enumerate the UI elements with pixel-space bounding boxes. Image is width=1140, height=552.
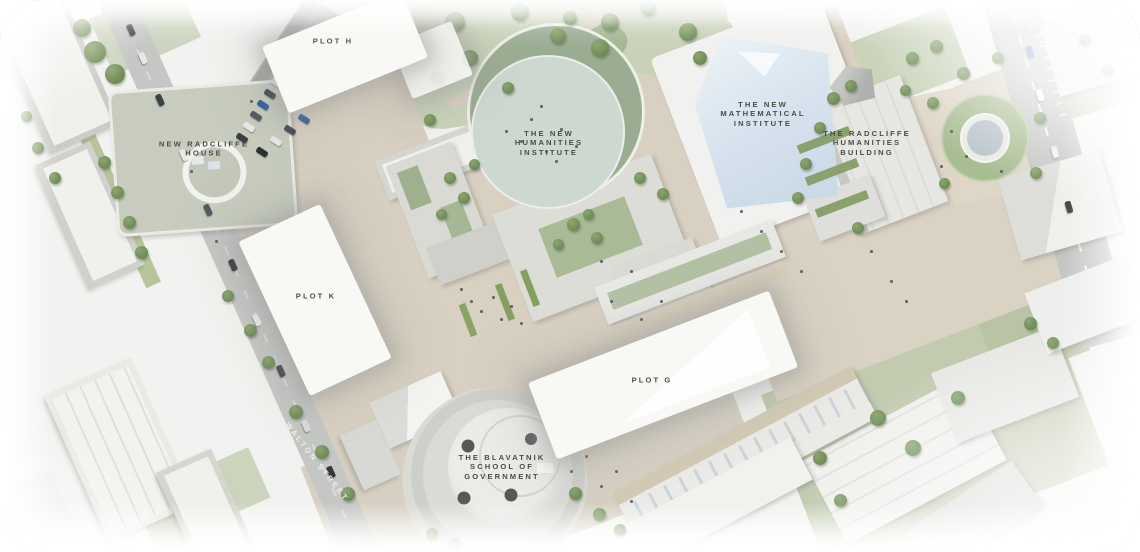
label-blavatnik-school: THE BLAVATNIK SCHOOL OF GOVERNMENT [459,453,546,481]
tree-icon [591,39,609,57]
label-humanities-institute: THE NEW HUMANITIES INSTITUTE [515,129,583,157]
label-new-radcliffe-house: NEW RADCLIFFE HOUSE [159,140,249,159]
person-dot [640,318,643,321]
car-icon [242,121,255,133]
label-line: HUMANITIES [833,138,901,147]
tree-icon [123,216,136,229]
person-dot [492,296,495,299]
car-icon [1035,88,1044,101]
tree-icon [49,172,61,184]
car-icon [1050,145,1059,158]
car-icon [203,203,213,216]
label-line: BUILDING [840,148,894,157]
label-line: PLOT G [632,375,673,384]
tree-icon [591,232,603,244]
tree-icon [583,209,594,220]
tree-icon [792,192,804,204]
car-icon [1064,200,1073,213]
person-dot [505,130,508,133]
tree-icon [436,209,447,220]
tree-icon [1047,337,1059,349]
car-icon [126,23,136,36]
tree-icon [634,172,646,184]
label-line: MATHEMATICAL [720,109,805,118]
person-dot [555,160,558,163]
tree-icon [424,114,436,126]
tree-icon [870,410,886,426]
car-icon [276,364,286,377]
person-dot [190,170,193,173]
tree-icon [449,538,461,550]
tree-icon [939,178,950,189]
tree-icon [458,192,470,204]
tree-icon [444,172,456,184]
person-dot [520,322,523,325]
person-dot [950,130,953,133]
label-mathematical-institute: THE NEW MATHEMATICAL INSTITUTE [720,100,805,128]
person-dot [530,118,533,121]
tree-icon [73,19,91,37]
tree-icon [827,92,840,105]
label-line: PLOT H [313,36,353,45]
label-radcliffe-humanities: THE RADCLIFFE HUMANITIES BUILDING [823,129,911,157]
car-icon [269,135,282,147]
label-line: HUMANITIES [515,138,583,147]
label-line: PLOT K [296,291,336,300]
car-icon [301,419,311,432]
person-dot [585,455,588,458]
car-icon [138,51,148,64]
tree-icon [567,218,580,231]
person-dot [600,260,603,263]
tree-icon [601,13,619,31]
car-icon [155,93,165,106]
person-dot [760,230,763,233]
tree-icon [32,142,44,154]
tree-icon [289,405,303,419]
tree-icon [640,0,656,16]
car-icon [263,88,276,100]
tree-icon [262,356,275,369]
masterplan-map: NEW RADCLIFFE HOUSE PLOT H THE NEW HUMAN… [0,0,1140,552]
tree-icon [135,246,148,259]
car-icon [228,258,238,271]
decoration-layer [0,0,1140,552]
person-dot [660,300,663,303]
person-dot [780,250,783,253]
person-dot [610,300,613,303]
car-icon [297,113,310,125]
tree-icon [813,451,827,465]
tree-icon [550,28,566,44]
tree-icon [657,188,669,200]
tree-icon [957,67,970,80]
tree-icon [1079,34,1091,46]
tree-icon [614,524,626,536]
car-icon [256,99,269,111]
person-dot [540,105,543,108]
person-dot [570,470,573,473]
person-dot [630,500,633,503]
tree-icon [593,508,606,521]
label-line: SCHOOL OF [470,462,534,471]
tree-icon [852,222,864,234]
tree-icon [222,290,234,302]
tree-icon [693,51,707,65]
label-line: GOVERNMENT [464,472,539,481]
label-line: HOUSE [185,149,223,158]
person-dot [965,155,968,158]
tree-icon [1024,317,1037,330]
tree-icon [834,494,847,507]
tree-icon [900,85,911,96]
person-dot [870,250,873,253]
person-dot [630,270,633,273]
tree-icon [906,52,919,65]
label-line: NEW RADCLIFFE [159,140,249,149]
tree-icon [927,97,939,109]
tree-icon [98,156,111,169]
person-dot [600,485,603,488]
label-plot-h: PLOT H [313,36,353,45]
tree-icon [502,82,514,94]
person-dot [615,470,618,473]
person-dot [905,300,908,303]
person-dot [740,210,743,213]
tree-icon [845,80,857,92]
person-dot [1000,170,1003,173]
tree-icon [84,41,106,63]
person-dot [470,300,473,303]
tree-icon [563,11,577,25]
car-icon [249,110,262,122]
label-plot-k: PLOT K [296,291,336,300]
tree-icon [569,487,582,500]
car-icon [283,124,296,136]
person-dot [800,270,803,273]
person-dot [890,280,893,283]
site-plan: NEW RADCLIFFE HOUSE PLOT H THE NEW HUMAN… [0,0,1140,552]
tree-icon [905,440,921,456]
label-line: THE NEW [524,129,574,138]
tree-icon [679,23,697,41]
tree-icon [1034,112,1046,124]
tree-icon [800,158,812,170]
tree-icon [992,52,1004,64]
tree-icon [1102,64,1114,76]
person-dot [510,305,513,308]
label-line: INSTITUTE [520,148,578,157]
tree-icon [105,64,125,84]
tree-icon [21,111,32,122]
label-plot-g: PLOT G [632,375,673,384]
person-dot [460,288,463,291]
tree-icon [244,324,257,337]
person-dot [215,240,218,243]
label-line: THE RADCLIFFE [823,129,911,138]
tree-icon [511,3,529,21]
car-icon [255,146,268,158]
car-icon [1025,45,1034,58]
tree-icon [426,528,438,540]
person-dot [940,165,943,168]
person-dot [500,318,503,321]
tree-icon [553,239,564,250]
tree-icon [469,159,480,170]
tree-icon [111,186,124,199]
tree-icon [951,391,965,405]
person-dot [250,100,253,103]
tree-icon [930,40,943,53]
label-line: INSTITUTE [734,119,792,128]
person-dot [480,310,483,313]
label-line: THE BLAVATNIK [459,453,546,462]
label-line: THE NEW [738,100,788,109]
tree-icon [1030,167,1042,179]
